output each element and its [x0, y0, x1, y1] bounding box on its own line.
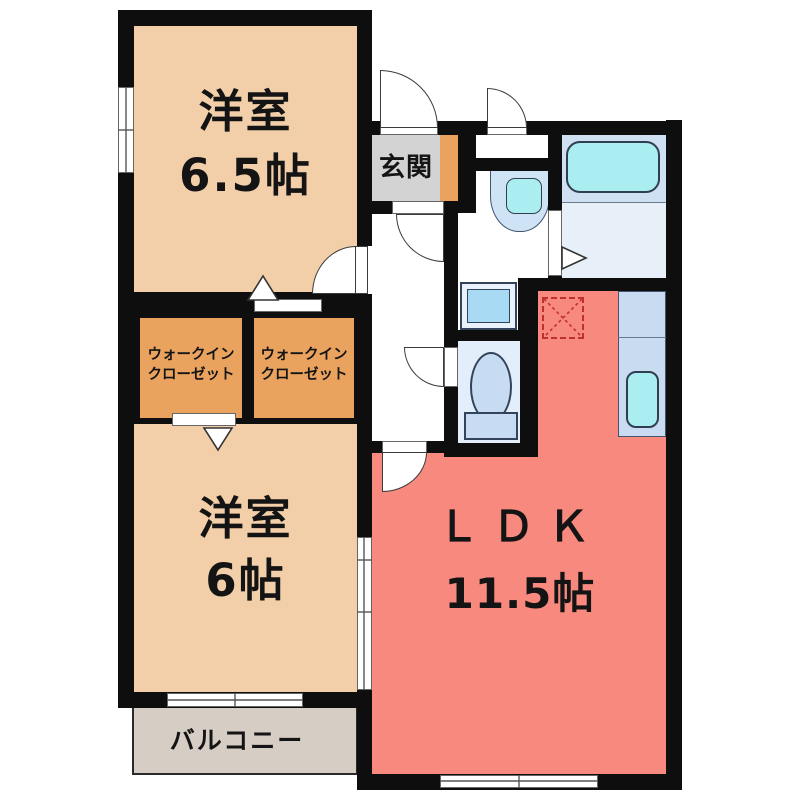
- bathroom-zone-divider: [562, 202, 666, 203]
- label-wic-left: ウォークイン クローゼット: [138, 346, 244, 385]
- wall: [444, 443, 538, 457]
- toilet-door-arc: [404, 347, 444, 387]
- sliding-door-room-ldk: [357, 537, 372, 690]
- service-door-arc: [487, 88, 527, 128]
- label-entrance: 玄関: [372, 155, 440, 182]
- bathtub: [566, 141, 660, 193]
- label-room-top-name: 洋室: [134, 88, 357, 135]
- label-ldk-size: 11.5帖: [380, 572, 660, 616]
- label-room-top-size: 6.5帖: [134, 152, 357, 199]
- wall: [518, 278, 682, 291]
- bathroom-floor-zone: [562, 203, 666, 278]
- label-room-bottom-size: 6帖: [134, 557, 357, 604]
- washbasin-bowl: [506, 178, 542, 214]
- wall: [520, 330, 538, 457]
- entrance-door-arc: [380, 70, 438, 128]
- label-wic-right-line2: クローゼット: [252, 366, 356, 386]
- floor-plan: 洋室 6.5帖 玄関 ウォークイン クローゼット ウォークイン クローゼット 洋…: [0, 0, 800, 800]
- wall: [427, 441, 444, 453]
- wall: [470, 158, 548, 171]
- wall: [372, 201, 392, 214]
- kitchen-sink: [626, 371, 659, 428]
- wall: [118, 292, 372, 312]
- wall: [444, 201, 458, 443]
- kitchen-counter-divider: [618, 337, 666, 338]
- shoe-cabinet: [440, 135, 458, 201]
- room-door-leaf: [354, 246, 368, 294]
- refrigerator-space: [542, 297, 584, 339]
- wall: [372, 441, 382, 453]
- label-wic-right: ウォークイン クローゼット: [252, 346, 356, 385]
- label-wic-left-line2: クローゼット: [138, 366, 244, 386]
- hall-door-arc: [396, 214, 444, 262]
- toilet-tank: [464, 412, 518, 440]
- label-room-bottom-name: 洋室: [134, 495, 357, 542]
- hall-door-threshold: [392, 201, 444, 214]
- label-balcony: バルコニー: [132, 728, 342, 754]
- wall: [118, 10, 372, 26]
- window-left: [118, 87, 134, 173]
- wic-left-opening: [172, 413, 236, 426]
- label-wic-right-line1: ウォークイン: [252, 346, 356, 366]
- window-ldk-bottom: [440, 775, 598, 788]
- label-ldk-name: ＬＤＫ: [380, 505, 660, 549]
- wall: [666, 120, 682, 790]
- washing-machine: [467, 289, 510, 323]
- bathroom-door: [548, 210, 562, 276]
- toilet-door-threshold: [444, 347, 458, 387]
- label-wic-left-line1: ウォークイン: [138, 346, 244, 366]
- balcony-sliding-door: [167, 693, 303, 707]
- wic-right-opening: [254, 299, 322, 312]
